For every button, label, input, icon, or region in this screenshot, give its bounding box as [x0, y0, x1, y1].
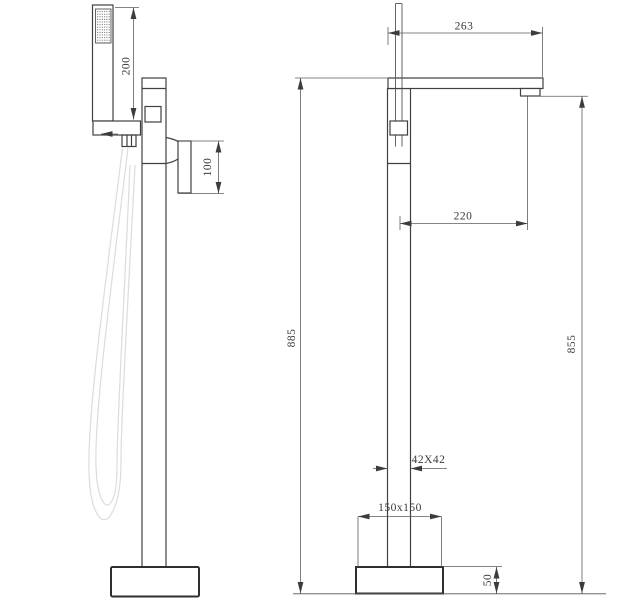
dim-label-42x42: 42X42: [412, 454, 446, 466]
spout-outlet: [521, 89, 541, 97]
spout: [388, 78, 543, 89]
dim-base-thickness: 50: [443, 567, 502, 594]
dim-spout-reach-outlet: 220: [400, 97, 528, 231]
spray-face: [96, 9, 112, 43]
technical-drawing: 200 100: [0, 0, 635, 600]
hose-connector: [122, 135, 136, 147]
riser-column-front: [388, 89, 411, 568]
dim-label-50: 50: [482, 574, 494, 587]
shower-bracket: [93, 121, 141, 135]
dim-label-263: 263: [455, 21, 474, 33]
base-plate-front: [356, 567, 443, 594]
left-view: 200 100: [89, 5, 224, 597]
dim-label-855: 855: [566, 335, 578, 354]
right-view: 263 220 885 855 42X42: [286, 4, 606, 594]
dim-outlet-height: 855: [540, 96, 588, 593]
riser-column-side: [142, 78, 166, 567]
diverter-knob-side: [145, 107, 161, 123]
drawing-canvas: 200 100: [0, 0, 635, 600]
dim-label-150x150: 150x150: [378, 502, 422, 514]
dim-label-200: 200: [121, 57, 133, 76]
dim-hand-shower-length: 200: [115, 8, 139, 120]
dim-label-885: 885: [286, 329, 298, 348]
dim-label-220: 220: [454, 211, 473, 223]
base-plate-side: [111, 567, 199, 597]
diverter-knob-front: [390, 121, 408, 135]
dim-label-100: 100: [202, 158, 214, 177]
handle-lever: [166, 138, 191, 194]
shower-hose: [89, 148, 135, 520]
dim-spout-reach-overall: 263: [388, 21, 543, 78]
